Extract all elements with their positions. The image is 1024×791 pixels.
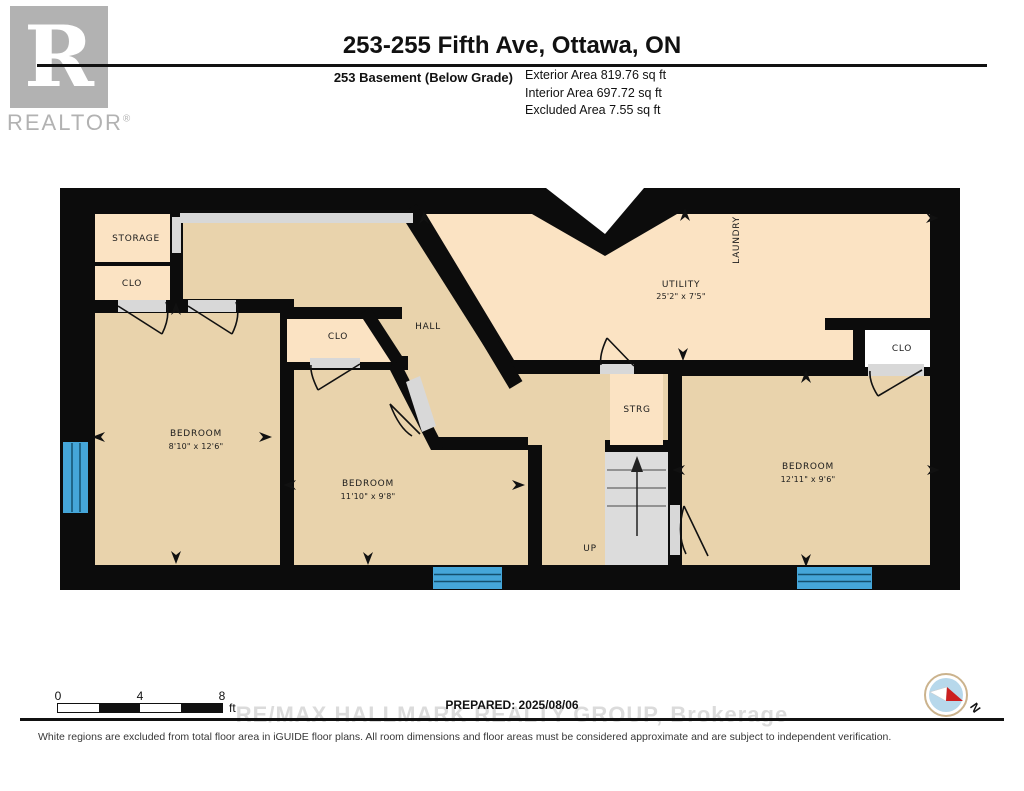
window-west <box>63 442 88 513</box>
excluded-area: Excluded Area 7.55 sq ft <box>525 102 666 120</box>
header-rule <box>37 64 987 67</box>
clo-left-label: CLO <box>122 279 142 289</box>
bedroom-right-label: BEDROOM <box>782 462 834 472</box>
bedroom-left-label: BEDROOM <box>170 429 222 439</box>
laundry-label: LAUNDRY <box>732 216 742 264</box>
floor-label: 253 Basement (Below Grade) <box>270 70 513 85</box>
clo-right-label: CLO <box>892 344 912 354</box>
utility-label: UTILITY <box>662 280 700 290</box>
up-label: UP <box>583 544 596 554</box>
bedroom-middle-dims: 11'10" x 9'8" <box>341 492 396 501</box>
bedroom-left-dims: 8'10" x 12'6" <box>169 442 224 451</box>
exterior-area: Exterior Area 819.76 sq ft <box>525 67 666 85</box>
interior-area: Interior Area 697.72 sq ft <box>525 85 666 103</box>
footer-rule <box>20 718 1004 721</box>
compass-north-label: N <box>967 700 983 715</box>
registered-mark: ® <box>123 114 132 125</box>
realtor-wordmark-text: REALTOR <box>7 110 123 135</box>
hall-label: HALL <box>415 322 441 332</box>
disclaimer-text: White regions are excluded from total fl… <box>38 731 1018 743</box>
area-summary: Exterior Area 819.76 sq ft Interior Area… <box>525 67 666 120</box>
page-title: 253-255 Fifth Ave, Ottawa, ON <box>0 32 1024 60</box>
storage-label: STORAGE <box>112 234 160 244</box>
compass-icon: N <box>916 668 986 728</box>
bedroom-left-fill <box>95 313 280 565</box>
clo-middle-label: CLO <box>328 332 348 342</box>
window-south-middle <box>433 567 502 589</box>
window-south-right <box>797 567 872 589</box>
floor-plan: STORAGE CLO HALL CLO UTILITY 25'2" x 7'5… <box>60 188 960 590</box>
utility-dims: 25'2" x 7'5" <box>656 292 705 301</box>
strg-label: STRG <box>623 405 650 415</box>
bedroom-right-dims: 12'11" x 9'6" <box>781 475 836 484</box>
prepared-date: PREPARED: 2025/08/06 <box>0 698 1024 712</box>
bedroom-middle-label: BEDROOM <box>342 479 394 489</box>
realtor-wordmark: REALTOR® <box>7 110 147 136</box>
